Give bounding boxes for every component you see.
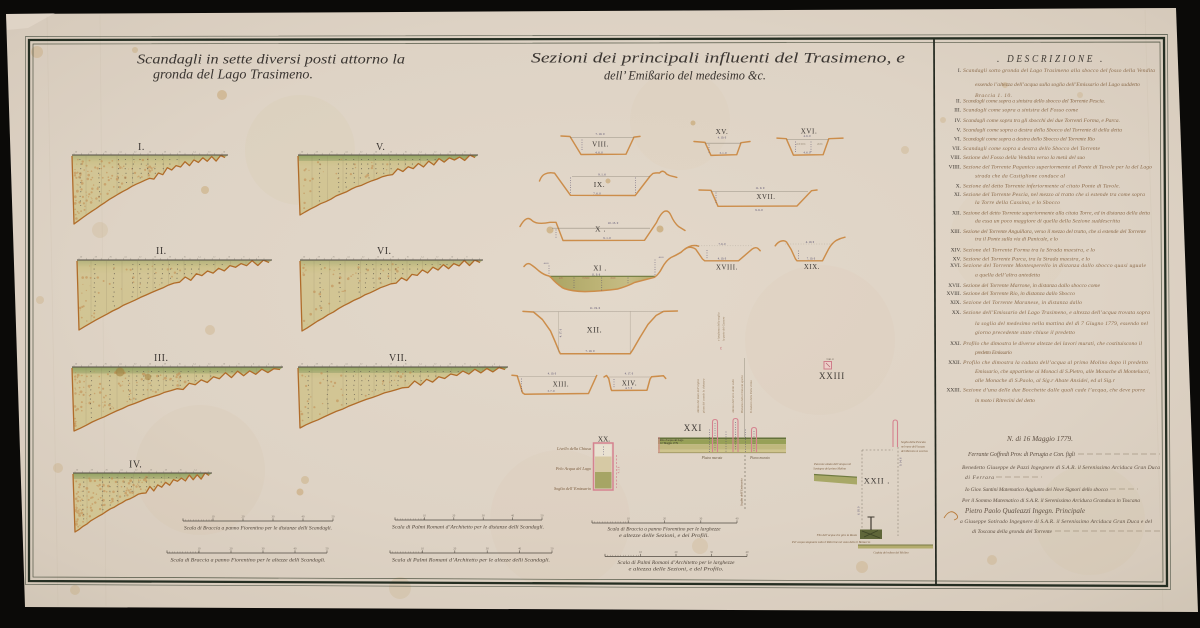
svg-text:VI.: VI. <box>377 246 392 257</box>
svg-text:. DESCRIZIONE .: . DESCRIZIONE . <box>997 54 1105 65</box>
svg-text:10: 10 <box>639 550 643 554</box>
svg-text:XXIII: XXIII <box>819 371 845 381</box>
svg-text:7. 6. 0: 7. 6. 0 <box>719 243 727 246</box>
svg-text:IX.: IX. <box>594 180 605 189</box>
svg-text:VII.: VII. <box>389 353 407 364</box>
svg-text:XXI.: XXI. <box>950 341 961 347</box>
svg-text:XIX.: XIX. <box>950 300 961 306</box>
svg-text:Can. 4: Can. 4 <box>827 358 834 361</box>
svg-text:Piano murato: Piano murato <box>749 456 770 460</box>
svg-text:a Giuseppe Sotirado Ingegnere: a Giuseppe Sotirado Ingegnere di S.A.R. … <box>960 519 1152 525</box>
svg-text:11. 0. 6: 11. 0. 6 <box>592 274 601 277</box>
svg-text:9. 1. 6: 9. 1. 6 <box>598 172 606 176</box>
svg-text:e altezza delle Sezioni, e del: e altezza delle Sezioni, e del Profilo. <box>629 566 724 573</box>
svg-text:alzato: alzato <box>610 278 616 280</box>
svg-text:Platea murata: Platea murata <box>701 456 723 460</box>
svg-text:50: 50 <box>541 514 545 518</box>
svg-text:11. 19. 6: 11. 19. 6 <box>590 306 601 310</box>
svg-text:XIII.: XIII. <box>553 382 569 389</box>
svg-text:la soglia del medesimo nella m: la soglia del medesimo nella mattina del… <box>975 321 1148 327</box>
svg-text:Altezza dell’arco della volta: Altezza dell’arco della volta <box>731 379 735 414</box>
svg-text:10: 10 <box>421 547 425 551</box>
svg-text:4. 6. 0: 4. 6. 0 <box>595 150 603 154</box>
svg-text:III.: III. <box>154 353 169 364</box>
svg-text:il alzato: il alzato <box>583 278 591 280</box>
svg-text:Distanza dalla Chiaveta aperta: Distanza dalla Chiaveta aperta <box>740 375 744 414</box>
svg-text:XXII .: XXII . <box>864 477 890 486</box>
svg-text:XII.: XII. <box>952 210 961 216</box>
svg-text:75: 75 <box>719 346 723 350</box>
svg-text:Scandagli come sopra a destra: Scandagli come sopra a destra dello Sboc… <box>963 137 1095 143</box>
svg-text:Sezione del Torrente Anguillar: Sezione del Torrente Anguillara, verso i… <box>963 229 1146 235</box>
svg-text:giorno precedente state chiuse: giorno precedente state chiuse il predet… <box>975 330 1075 336</box>
svg-text:XV.: XV. <box>716 128 729 136</box>
svg-text:20: 20 <box>675 550 679 554</box>
svg-text:di Ferrara: di Ferrara <box>965 475 994 481</box>
svg-text:Scala di Palmi Romani d’Archit: Scala di Palmi Romani d’Architetto per l… <box>392 525 544 531</box>
svg-text:Caduta del refuso del Mulino: Caduta del refuso del Mulino <box>873 551 909 555</box>
svg-text:Sezione del Torrente Pescia, n: Sezione del Torrente Pescia, nel mezzo a… <box>963 192 1145 198</box>
svg-text:Sezione del Torrente Parca, tr: Sezione del Torrente Parca, tra la Strad… <box>963 257 1090 263</box>
svg-text:10: 10 <box>627 517 631 521</box>
svg-text:Sezione del detto Torrente inf: Sezione del detto Torrente inferiormente… <box>963 183 1120 190</box>
svg-text:VIII.: VIII. <box>592 141 609 149</box>
svg-text:Sostegno del primo Molino: Sostegno del primo Molino <box>813 467 846 471</box>
svg-text:nel vano dell’acqua: nel vano dell’acqua <box>901 445 925 449</box>
svg-text:Sezione del Torrente Marrone,: Sezione del Torrente Marrone, in distanz… <box>963 283 1100 289</box>
svg-text:6. 18. 9: 6. 18. 9 <box>858 506 861 515</box>
svg-text:30: 30 <box>482 514 486 518</box>
svg-text:10: 10 <box>423 514 427 518</box>
svg-text:XVII.: XVII. <box>756 194 775 201</box>
svg-text:XI .: XI . <box>593 265 607 273</box>
svg-text:XVI.: XVI. <box>801 128 818 136</box>
svg-text:X.: X. <box>956 184 961 190</box>
svg-text:XVIII.: XVIII. <box>946 291 961 297</box>
svg-text:Scandagli come sopra a destra: Scandagli come sopra a destra della Sboc… <box>963 127 1122 133</box>
svg-text:Pietro Paolo Qualeazzi Ingegn.: Pietro Paolo Qualeazzi Ingegn. Principal… <box>964 507 1085 515</box>
svg-text:V.: V. <box>376 142 385 153</box>
svg-text:4.0.0: 4.0.0 <box>544 262 550 265</box>
svg-text:XIX.: XIX. <box>804 264 820 271</box>
svg-text:Pelo Acqua del Lago: Pelo Acqua del Lago <box>555 466 591 471</box>
svg-text:4. 17. 6: 4. 17. 6 <box>560 328 563 337</box>
svg-text:20: 20 <box>242 515 246 519</box>
svg-text:4. 10. 0: 4. 10. 0 <box>548 373 557 376</box>
svg-text:3. 1. 0: 3. 1. 0 <box>720 152 728 155</box>
svg-text:4. 10. 0: 4. 10. 0 <box>718 258 727 261</box>
svg-text:9. 6. 0: 9. 6. 0 <box>755 208 763 212</box>
svg-text:Scala di Braccia a panno Fiore: Scala di Braccia a panno Fiorentino per … <box>184 526 332 532</box>
svg-text:X .: X . <box>595 225 606 234</box>
svg-text:VI.: VI. <box>954 137 961 143</box>
svg-text:del Mercato si scarica: del Mercato si scarica <box>901 449 928 453</box>
svg-text:4. 3. 6: 4. 3. 6 <box>618 466 621 473</box>
svg-text:di Toscana della gronda del To: di Toscana della gronda del Torrente <box>972 529 1053 535</box>
svg-text:Sezione del detto Torrente sup: Sezione del detto Torrente superiormente… <box>963 210 1150 216</box>
svg-text:la Torre della Cassina, e lo S: la Torre della Cassina, e lo Sbocco <box>975 200 1060 206</box>
svg-text:10: 10 <box>212 515 216 519</box>
svg-text:7. 10. 0: 7. 10. 0 <box>586 349 596 353</box>
svg-text:XI.: XI. <box>954 192 961 198</box>
svg-text:a quella dell’altra antedetta: a quella dell’altra antedetta <box>975 272 1040 278</box>
svg-text:predetto Emissario: predetto Emissario <box>974 350 1012 356</box>
svg-text:4. 17. 0: 4. 17. 0 <box>625 373 634 376</box>
svg-text:VII.: VII. <box>952 146 961 152</box>
svg-text:11. 0. 0: 11. 0. 0 <box>756 186 765 190</box>
svg-text:Sezione del Torrente Forma tra: Sezione del Torrente Forma tra la Strada… <box>963 247 1095 253</box>
svg-text:Scala di Braccia a panno Fiore: Scala di Braccia a panno Fiorentino per … <box>171 558 326 564</box>
svg-text:VIIII.: VIIII. <box>949 164 961 170</box>
svg-text:20: 20 <box>663 517 667 521</box>
svg-text:IV.: IV. <box>129 460 142 471</box>
svg-text:V.: V. <box>956 127 961 133</box>
svg-text:10. 13. 0: 10. 13. 0 <box>608 221 619 225</box>
svg-text:la parte del Cassero: la parte del Cassero <box>722 316 726 341</box>
svg-text:Scandagli come sopra a sinistr: Scandagli come sopra a sinistra del Foss… <box>963 108 1078 114</box>
svg-text:7. 6. 0: 7. 6. 0 <box>593 192 601 196</box>
svg-text:I.: I. <box>958 68 961 74</box>
svg-text:essendo l’altezza dell’acqua s: essendo l’altezza dell’acqua sulla sogli… <box>975 82 1140 88</box>
svg-text:Ferrante Goffredi Prov. di Per: Ferrante Goffredi Prov. di Perugia e Con… <box>967 451 1075 458</box>
svg-text:40: 40 <box>746 550 750 554</box>
svg-text:40: 40 <box>736 517 740 521</box>
svg-text:4. 10. 0: 4. 10. 0 <box>806 241 815 244</box>
svg-text:Scandagli come sopra a sinistr: Scandagli come sopra a sinistra dello sb… <box>963 98 1105 104</box>
svg-text:Pancone alzato dell’Acqua nel: Pancone alzato dell’Acqua nel <box>813 462 851 466</box>
svg-text:Sezione del Fosso della Vendit: Sezione del Fosso della Vendita verso la… <box>963 155 1085 161</box>
svg-text:20: 20 <box>452 514 456 518</box>
svg-text:Scala di Braccia a panno Fiore: Scala di Braccia a panno Fiorentino per … <box>608 527 722 533</box>
svg-text:Altezza del muro dell’argine: Altezza del muro dell’argine <box>696 378 700 414</box>
svg-text:Profilo che dimostra le divers: Profilo che dimostra le diverse altezze … <box>962 340 1142 347</box>
svg-text:pietra: pietra <box>818 144 823 146</box>
svg-text:XIII.: XIII. <box>950 229 961 235</box>
svg-text:Per il Sommo Matematico di S.A: Per il Sommo Matematico di S.A.R. il Ser… <box>961 498 1140 504</box>
svg-text:Profilo che dimostra la caduta: Profilo che dimostra la caduta dell’acqu… <box>962 359 1148 366</box>
svg-text:I.: I. <box>138 142 145 153</box>
svg-text:9. 14. 6: 9. 14. 6 <box>900 457 903 466</box>
svg-text:VIII.: VIII. <box>950 155 961 161</box>
svg-text:XVII.: XVII. <box>948 283 961 289</box>
svg-text:Sezione del Torrente Paganico: Sezione del Torrente Paganico superiorme… <box>963 164 1152 170</box>
svg-text:7. 10. 0: 7. 10. 0 <box>807 258 816 261</box>
svg-text:Scala di Palmi Romani d’Archit: Scala di Palmi Romani d’Architetto per l… <box>392 558 550 564</box>
svg-text:XXI: XXI <box>684 423 702 433</box>
svg-text:3. 7. 0: 3. 7. 0 <box>548 390 556 393</box>
svg-text:XX.: XX. <box>598 436 610 444</box>
svg-text:Sezione d’una delle due Bocche: Sezione d’una delle due Bocchette dalle … <box>963 387 1145 393</box>
svg-text:Scandagli come sopra tra gli s: Scandagli come sopra tra gli sbocchi dei… <box>963 118 1120 124</box>
svg-text:alle Monache di S.Paolo, al Si: alle Monache di S.Paolo, al Sig.r Abate … <box>975 378 1116 384</box>
svg-text:XXIII.: XXIII. <box>946 387 961 393</box>
svg-text:Sezioni dei principali influen: Sezioni dei principali influenti del Tra… <box>531 51 906 67</box>
svg-text:li 7 Maggio 1779: li 7 Maggio 1779 <box>660 442 679 445</box>
svg-text:40: 40 <box>511 514 515 518</box>
svg-text:Sezione dell’Emissario del Lag: Sezione dell’Emissario del Lago Trasimen… <box>963 310 1150 316</box>
svg-text:40: 40 <box>518 547 522 551</box>
svg-text:9. 1. 0: 9. 1. 0 <box>603 236 611 240</box>
svg-text:II.: II. <box>156 246 167 257</box>
svg-text:Benedetto Giuseppe de Pazzi In: Benedetto Giuseppe de Pazzi Ingegnere di… <box>962 465 1160 471</box>
svg-text:IV.: IV. <box>955 118 961 124</box>
svg-text:Io Giov. Santini Matematico Ag: Io Giov. Santini Matematico Aggiunto dei… <box>964 487 1108 493</box>
svg-text:Scandagli sotto gronda del Lag: Scandagli sotto gronda del Lago Trasimen… <box>963 67 1155 74</box>
svg-text:gronda del Lago Trasimeno.: gronda del Lago Trasimeno. <box>153 67 313 82</box>
svg-text:N. di 16 Maggio 1779.: N. di 16 Maggio 1779. <box>1006 435 1073 443</box>
svg-text:XX.: XX. <box>952 310 961 316</box>
svg-text:30: 30 <box>710 550 714 554</box>
svg-text:e larghezza della soglia: e larghezza della soglia <box>717 312 721 341</box>
svg-text:Emissario, che appartiene ai M: Emissario, che appartiene ai Monaci di S… <box>974 369 1151 375</box>
svg-text:7. 10. 0: 7. 10. 0 <box>596 132 606 136</box>
svg-text:30: 30 <box>699 517 703 521</box>
svg-text:e altezze delle Sezioni, e dei: e altezze delle Sezioni, e dei Profili. <box>619 532 709 539</box>
svg-text:Scandagli come sopra a destra: Scandagli come sopra a destra dello Sboc… <box>963 146 1100 152</box>
svg-text:Pel’ acqua stagnante sotto il: Pel’ acqua stagnante sotto il Ritrecine … <box>791 540 871 544</box>
svg-text:4. 6. 0: 4. 6. 0 <box>804 152 812 155</box>
svg-text:Sezione del Torrente Montesper: Sezione del Torrente Montesperello in di… <box>963 263 1146 269</box>
svg-text:XVIII.: XVIII. <box>716 265 738 272</box>
svg-text:II.: II. <box>956 98 961 104</box>
svg-text:50: 50 <box>332 515 336 519</box>
svg-text:40: 40 <box>294 547 298 551</box>
svg-text:Scandagli in sette diversi pos: Scandagli in sette diversi posti attorno… <box>137 52 405 67</box>
svg-text:40: 40 <box>302 515 306 519</box>
svg-text:Sezione del Torrente Rio, in d: Sezione del Torrente Rio, in distanza da… <box>963 291 1075 297</box>
svg-text:Scala di Palmi Romani d’Archit: Scala di Palmi Romani d’Architetto per l… <box>618 560 736 566</box>
svg-text:in moto i Ritrecini del detto: in moto i Ritrecini del detto <box>975 398 1035 404</box>
svg-text:piana del canale la chiusura: piana del canale la chiusura <box>702 378 706 414</box>
svg-text:Soglia dell’ Emissario: Soglia dell’ Emissario <box>554 486 591 491</box>
svg-text:4.6.0: 4.6.0 <box>659 256 665 259</box>
svg-text:III.: III. <box>954 108 961 114</box>
svg-text:Filo dell’acqua che gira la Ru: Filo dell’acqua che gira la Ruota <box>816 533 858 537</box>
svg-text:XVI.: XVI. <box>950 263 961 269</box>
svg-text:XIV.: XIV. <box>622 381 637 388</box>
svg-text:30: 30 <box>272 515 276 519</box>
svg-text:dell’ Emißario del medesimo &c: dell’ Emißario del medesimo &c. <box>604 69 766 83</box>
svg-text:tra il Ponte sulla via di Pani: tra il Ponte sulla via di Panicale, e lo <box>975 237 1058 243</box>
svg-text:30: 30 <box>486 547 490 551</box>
svg-text:Sezione del Torrente Maranese,: Sezione del Torrente Maranese, in distan… <box>963 300 1082 306</box>
svg-text:Soglia della Pescaia: Soglia della Pescaia <box>901 440 926 444</box>
svg-text:Il numero delle Palle china: Il numero delle Palle china <box>749 380 753 414</box>
svg-text:XXII.: XXII. <box>948 360 961 366</box>
svg-text:Soglia dell’Emissario: Soglia dell’Emissario <box>740 478 744 506</box>
svg-text:20: 20 <box>230 547 234 551</box>
svg-text:da essa un poco maggiore di qu: da essa un poco maggiore di quella della… <box>975 218 1120 224</box>
svg-text:4. 10. 0: 4. 10. 0 <box>718 137 727 140</box>
svg-text:XII.: XII. <box>587 326 603 335</box>
svg-text:10: 10 <box>198 547 202 551</box>
svg-text:XV.: XV. <box>953 257 961 263</box>
svg-text:XIV.: XIV. <box>951 247 961 253</box>
svg-text:20: 20 <box>453 547 457 551</box>
svg-text:Livello della Chiusa: Livello della Chiusa <box>556 446 591 451</box>
svg-text:50: 50 <box>326 547 330 551</box>
svg-text:30: 30 <box>262 547 266 551</box>
svg-text:50: 50 <box>551 547 555 551</box>
svg-text:strada che da Castiglione cond: strada che da Castiglione conduce al <box>975 174 1065 180</box>
svg-text:pelo mota: pelo mota <box>797 144 806 146</box>
